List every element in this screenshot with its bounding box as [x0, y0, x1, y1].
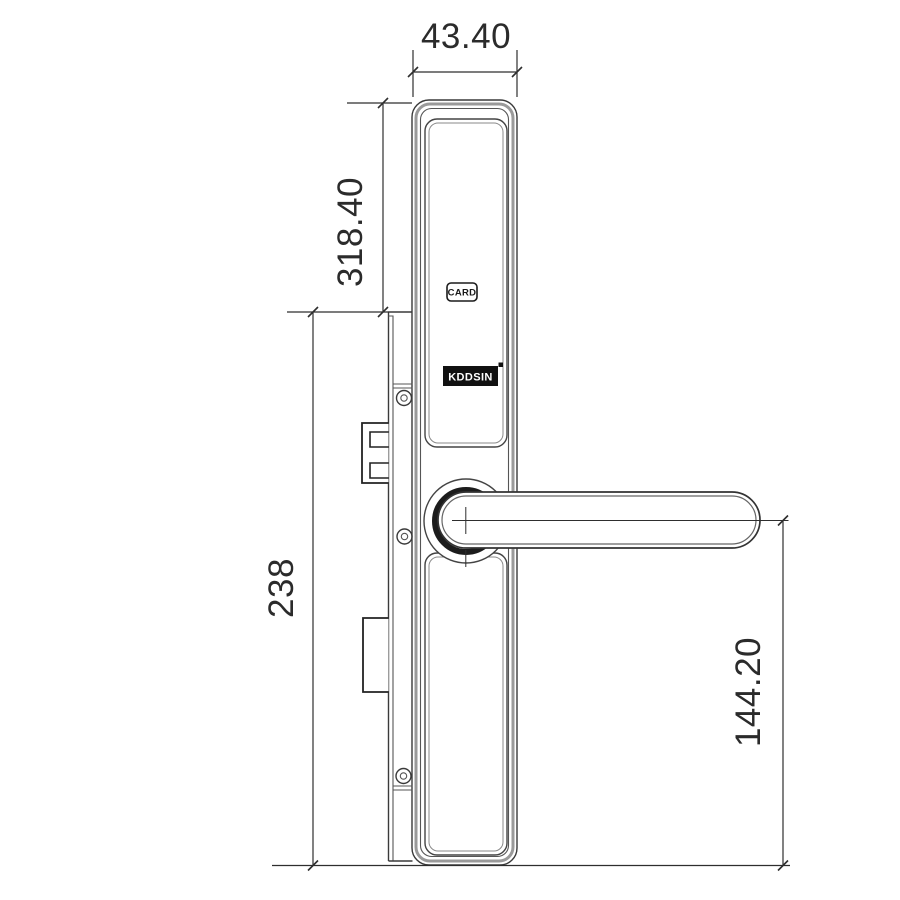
latch-bolt — [362, 423, 389, 483]
height-dimension-text: 318.40 — [331, 177, 370, 287]
width-extension-lines — [413, 50, 517, 97]
handle-dimension-text: 144.20 — [729, 637, 768, 747]
mortise-dimension-text: 238 — [262, 558, 301, 618]
screw-bottom — [396, 769, 411, 784]
deadbolt — [363, 618, 389, 692]
dimension-body-width: 43.40 — [408, 17, 522, 97]
lower-panel — [425, 553, 507, 855]
screw-middle — [397, 529, 412, 544]
card-badge-label: CARD — [448, 288, 477, 299]
mortise-faceplate — [362, 312, 413, 861]
deadbolt-outline — [363, 618, 389, 692]
card-badge: CARD — [447, 283, 477, 301]
dimension-mortise-height: 238 — [262, 307, 389, 871]
dimension-body-height: 318.40 — [331, 98, 412, 317]
brand-logo-trademark-icon — [499, 363, 504, 368]
handle — [424, 479, 789, 567]
screw-top — [397, 391, 412, 406]
drawing-canvas: CARD KDDSIN — [0, 0, 900, 900]
brand-logo: KDDSIN — [443, 363, 503, 387]
brand-logo-text: KDDSIN — [448, 372, 493, 384]
width-dimension-text: 43.40 — [421, 17, 511, 56]
dimension-handle-height: 144.20 — [729, 516, 788, 871]
faceplate-joint-lower — [393, 786, 413, 790]
faceplate-screws — [396, 391, 412, 784]
lower-panel-outer — [425, 553, 507, 855]
technical-drawing: CARD KDDSIN — [0, 0, 900, 900]
lower-panel-inner — [429, 557, 503, 851]
faceplate-joint-upper — [393, 384, 413, 388]
